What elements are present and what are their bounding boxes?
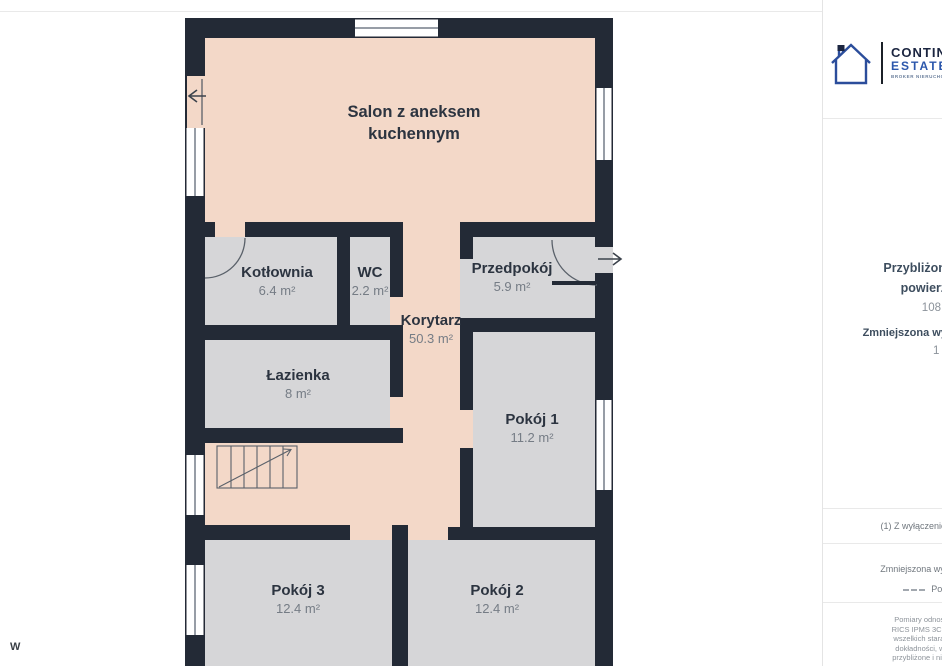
room-label-salon: Salon z aneksem kuchennym	[327, 101, 502, 145]
brand-divider	[881, 42, 883, 84]
room-area: 12.4 m²	[470, 600, 523, 617]
room-label-lazienka: Łazienka 8 m²	[266, 366, 329, 402]
brand-logo: CONTINE ESTATES BROKER NIERUCHOMO	[829, 38, 942, 88]
room-name: Łazienka	[266, 366, 329, 385]
wall-salon-bottom-c	[460, 222, 613, 237]
legend-value: Poniżej 1.5 m	[931, 584, 942, 594]
room-name: Pokój 2	[470, 581, 523, 600]
total-area-label-line2: powierzchnia(1)	[832, 277, 942, 297]
window-left-stairs	[185, 455, 205, 515]
wall-salon-bottom-a	[205, 222, 215, 237]
wall-przedpokoj-left-stub	[460, 237, 473, 259]
wall-kotlownia-wc	[337, 237, 350, 325]
wall-kotlownia-bottom	[197, 325, 403, 340]
door-opening-salon-terrace	[187, 76, 205, 128]
door-opening-lazienka	[390, 397, 403, 428]
window-left-pokoj3	[185, 565, 205, 635]
wall-pokoj1-left-lower	[460, 448, 473, 527]
legend-row: Poniżej 1.5 m	[832, 582, 942, 596]
total-area-block: Przybliżona całkowit powierzchnia(1) 108…	[832, 260, 942, 359]
room-area: 50.3 m²	[401, 330, 462, 347]
legend-block: Zmniejszona wysokość pomiesz Poniżej 1.5…	[832, 562, 942, 596]
brand-tagline: BROKER NIERUCHOMO	[891, 73, 942, 80]
room-label-kotlownia: Kotłownia 6.4 m²	[241, 263, 313, 299]
door-opening-pokoj3	[350, 525, 392, 540]
sidebar-divider-3	[823, 543, 942, 544]
door-opening-kotlownia	[215, 222, 245, 237]
wall-lazienka-bottom	[185, 428, 403, 443]
sidebar-divider-4	[823, 602, 942, 603]
total-area-value: 108.8 m²	[832, 300, 942, 316]
window-top	[355, 18, 438, 38]
door-opening-pokoj1	[460, 410, 473, 448]
disclaimer-line: RICS IPMS 3C. Pomimo dołoże	[832, 625, 942, 635]
door-opening-entrance	[595, 247, 613, 273]
reduced-height-value: 1 m²	[832, 343, 942, 359]
room-area: 11.2 m²	[505, 429, 558, 446]
window-right-pokoj1	[595, 400, 613, 490]
wall-pokoj3-top	[197, 525, 350, 540]
room-name: Korytarz	[401, 311, 462, 330]
room-name: Przedpokój	[472, 259, 553, 278]
room-name: WC	[352, 263, 389, 282]
window-left-salon	[185, 128, 205, 196]
legend-label: Zmniejszona wysokość pomiesz	[832, 562, 942, 576]
sidebar-divider-1	[823, 118, 942, 119]
disclaimer-line: przybliżone i nie są w skali. Ten	[832, 653, 942, 663]
room-floor-korytarz	[403, 222, 460, 527]
wall-pokoj2-top	[448, 527, 613, 540]
house-icon	[829, 40, 873, 88]
dashed-line-icon	[903, 589, 925, 591]
wall-salon-bottom-b	[245, 222, 403, 237]
wall-lazienka-right	[390, 340, 403, 397]
room-label-przedpokoj: Przedpokój 5.9 m²	[472, 259, 553, 295]
disclaimer-line: Pomiary odnoszą się do stand	[832, 615, 942, 625]
room-label-pokoj2: Pokój 2 12.4 m²	[470, 581, 523, 617]
brand-name-line1: CONTINE	[891, 46, 942, 60]
room-area: 6.4 m²	[241, 282, 313, 299]
room-floor-stair-hall	[205, 443, 403, 525]
door-opening-pokoj2	[408, 527, 448, 540]
wall-przedpokoj-bottom	[460, 318, 613, 332]
disclaimer-line: wszelkich starań w celu zapew	[832, 634, 942, 644]
room-name: Pokój 3	[271, 581, 324, 600]
room-area: 12.4 m²	[271, 600, 324, 617]
room-label-wc: WC 2.2 m²	[352, 263, 389, 299]
room-label-pokoj1: Pokój 1 11.2 m²	[505, 410, 558, 446]
disclaimer-line: dokładności, wszystkie pomia	[832, 644, 942, 654]
room-area: 8 m²	[266, 385, 329, 402]
brand-name-line2: ESTATES	[891, 60, 942, 73]
room-area: 2.2 m²	[352, 282, 389, 299]
room-label-korytarz: Korytarz 50.3 m²	[401, 311, 462, 347]
room-area: 5.9 m²	[472, 278, 553, 295]
watermark-text: W	[10, 641, 20, 653]
page-top-divider	[0, 11, 942, 12]
window-right-salon	[595, 88, 613, 160]
floorplan-page: { "page": { "watermark": "W" }, "plan": …	[0, 0, 942, 666]
disclaimer-block: Pomiary odnoszą się do stand RICS IPMS 3…	[832, 615, 942, 663]
total-area-label-line1: Przybliżona całkowit	[832, 260, 942, 277]
room-label-pokoj3: Pokój 3 12.4 m²	[271, 581, 324, 617]
footnote-text: (1) Z wyłączeniem balkonów i ta	[832, 521, 942, 531]
wall-wc-right	[390, 222, 403, 297]
sidebar-divider-2	[823, 508, 942, 509]
room-name: Salon z aneksem kuchennym	[327, 101, 502, 145]
wall-pokoj1-left-upper	[460, 332, 473, 410]
room-name: Pokój 1	[505, 410, 558, 429]
room-name: Kotłownia	[241, 263, 313, 282]
wall-pokoj3-pokoj2	[392, 525, 408, 666]
brand-text: CONTINE ESTATES BROKER NIERUCHOMO	[891, 46, 942, 80]
reduced-height-label: Zmniejszona wysokość pomies	[832, 326, 942, 341]
